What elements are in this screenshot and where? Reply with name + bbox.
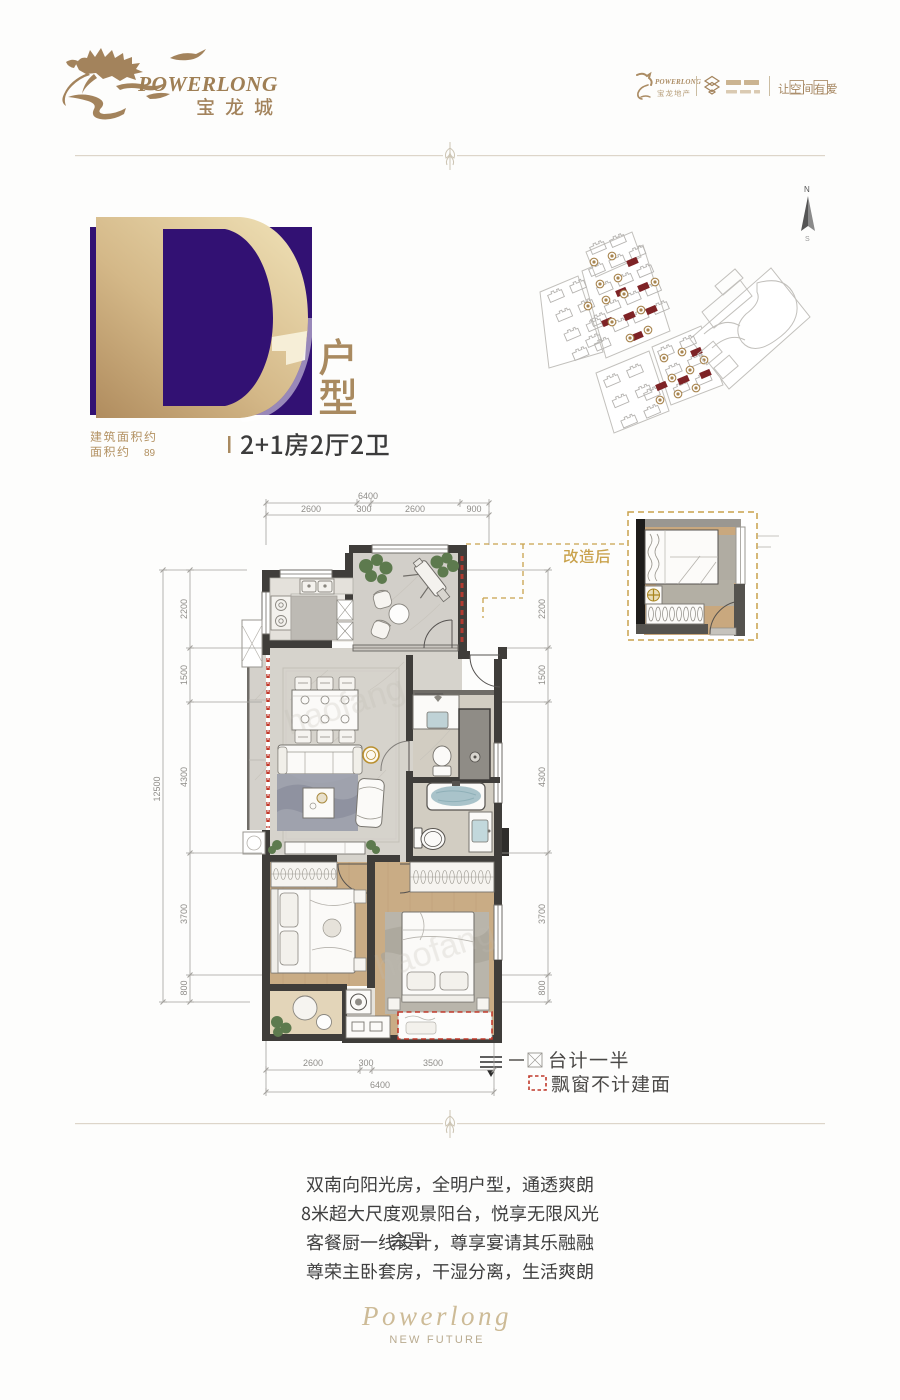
svg-text:800: 800: [537, 980, 547, 995]
svg-text:NEW FUTURE: NEW FUTURE: [389, 1334, 484, 1346]
svg-text:4300: 4300: [179, 767, 189, 787]
svg-text:N: N: [804, 185, 810, 194]
svg-text:2600: 2600: [405, 504, 425, 514]
svg-text:4300: 4300: [537, 767, 547, 787]
svg-text:6400: 6400: [370, 1080, 390, 1090]
svg-text:S: S: [805, 236, 810, 243]
svg-text:1500: 1500: [537, 665, 547, 685]
svg-text:POWERLONG: POWERLONG: [655, 78, 701, 86]
svg-text:POWERLONG: POWERLONG: [137, 72, 278, 96]
svg-text:Powerlong: Powerlong: [361, 1301, 512, 1331]
svg-text:89: 89: [144, 448, 156, 459]
svg-text:800: 800: [179, 980, 189, 995]
svg-text:2200: 2200: [179, 599, 189, 619]
svg-text:6400: 6400: [358, 491, 378, 501]
svg-text:12500: 12500: [152, 776, 162, 801]
svg-text:3700: 3700: [537, 904, 547, 924]
svg-text:2600: 2600: [303, 1058, 323, 1068]
svg-text:3700: 3700: [179, 904, 189, 924]
svg-text:300: 300: [358, 1058, 373, 1068]
svg-text:900: 900: [466, 504, 481, 514]
svg-text:1500: 1500: [179, 665, 189, 685]
svg-text:2600: 2600: [301, 504, 321, 514]
svg-text:3500: 3500: [423, 1058, 443, 1068]
svg-text:2200: 2200: [537, 599, 547, 619]
svg-text:300: 300: [356, 504, 371, 514]
